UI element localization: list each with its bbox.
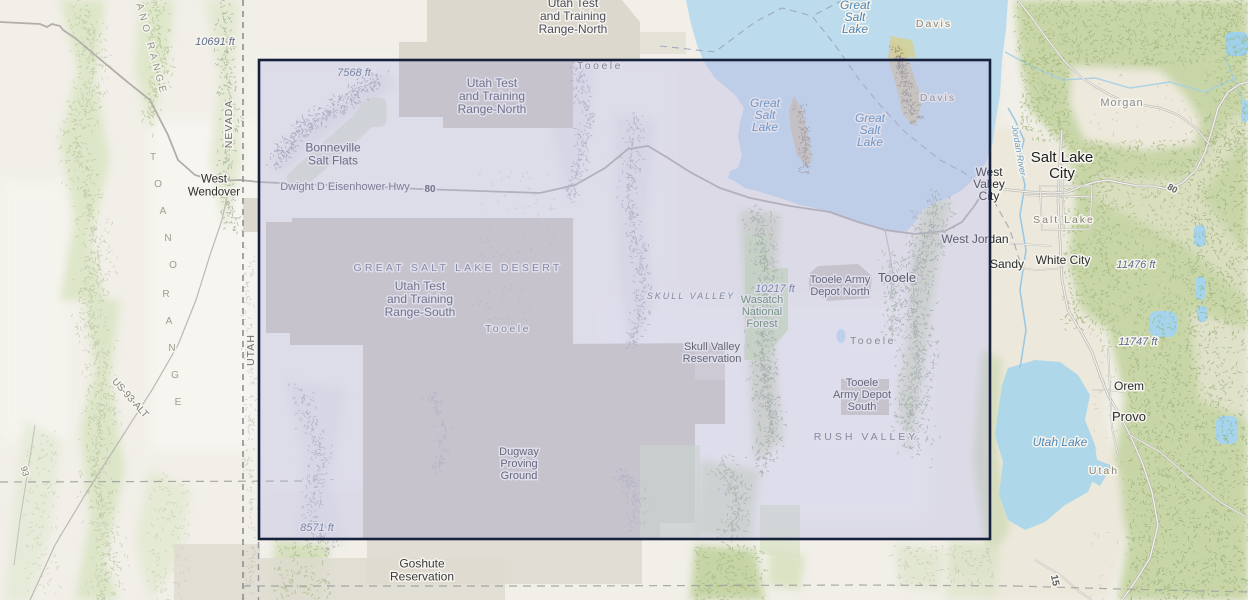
svg-text:G: G: [171, 370, 179, 381]
svg-text:Utah: Utah: [1089, 465, 1119, 477]
svg-text:Davis: Davis: [916, 18, 952, 30]
svg-text:White City: White City: [1036, 253, 1091, 267]
svg-text:A: A: [166, 316, 173, 327]
svg-text:N: N: [164, 233, 171, 244]
svg-text:11476 ft: 11476 ft: [1117, 259, 1157, 271]
svg-text:Range-North: Range-North: [539, 22, 608, 36]
svg-text:11747 ft: 11747 ft: [1119, 336, 1159, 348]
svg-text:E: E: [175, 397, 182, 408]
svg-text:A: A: [160, 206, 167, 217]
svg-text:UTAH: UTAH: [245, 334, 257, 366]
svg-text:Reservation: Reservation: [390, 570, 454, 584]
svg-text:Wendover: Wendover: [188, 187, 240, 199]
svg-text:N: N: [168, 343, 175, 354]
svg-text:and Training: and Training: [540, 9, 606, 23]
svg-text:T: T: [150, 152, 156, 163]
svg-text:Provo: Provo: [1112, 409, 1146, 424]
svg-text:West: West: [201, 174, 228, 186]
svg-text:Salt Lake: Salt Lake: [1033, 214, 1095, 226]
svg-text:Goshute: Goshute: [399, 557, 445, 571]
svg-text:City: City: [1049, 165, 1075, 182]
svg-text:O: O: [169, 260, 177, 271]
svg-text:O: O: [154, 179, 162, 190]
svg-text:Morgan: Morgan: [1100, 97, 1143, 109]
svg-text:Orem: Orem: [1114, 379, 1144, 393]
svg-text:10691 ft: 10691 ft: [195, 36, 236, 48]
svg-text:Salt Lake: Salt Lake: [1031, 149, 1094, 166]
svg-text:NEVADA: NEVADA: [223, 100, 235, 148]
svg-text:Utah Lake: Utah Lake: [1033, 435, 1088, 449]
svg-text:R: R: [162, 289, 169, 300]
svg-text:Lake: Lake: [842, 22, 868, 36]
svg-text:Sandy: Sandy: [990, 257, 1024, 271]
